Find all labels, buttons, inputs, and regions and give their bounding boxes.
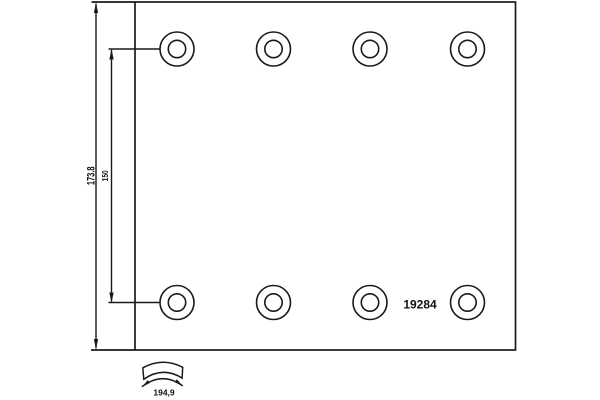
svg-text:150: 150	[100, 170, 110, 181]
svg-text:19284: 19284	[403, 298, 437, 312]
svg-text:173.8: 173.8	[85, 166, 97, 185]
svg-text:194,9: 194,9	[153, 388, 175, 398]
